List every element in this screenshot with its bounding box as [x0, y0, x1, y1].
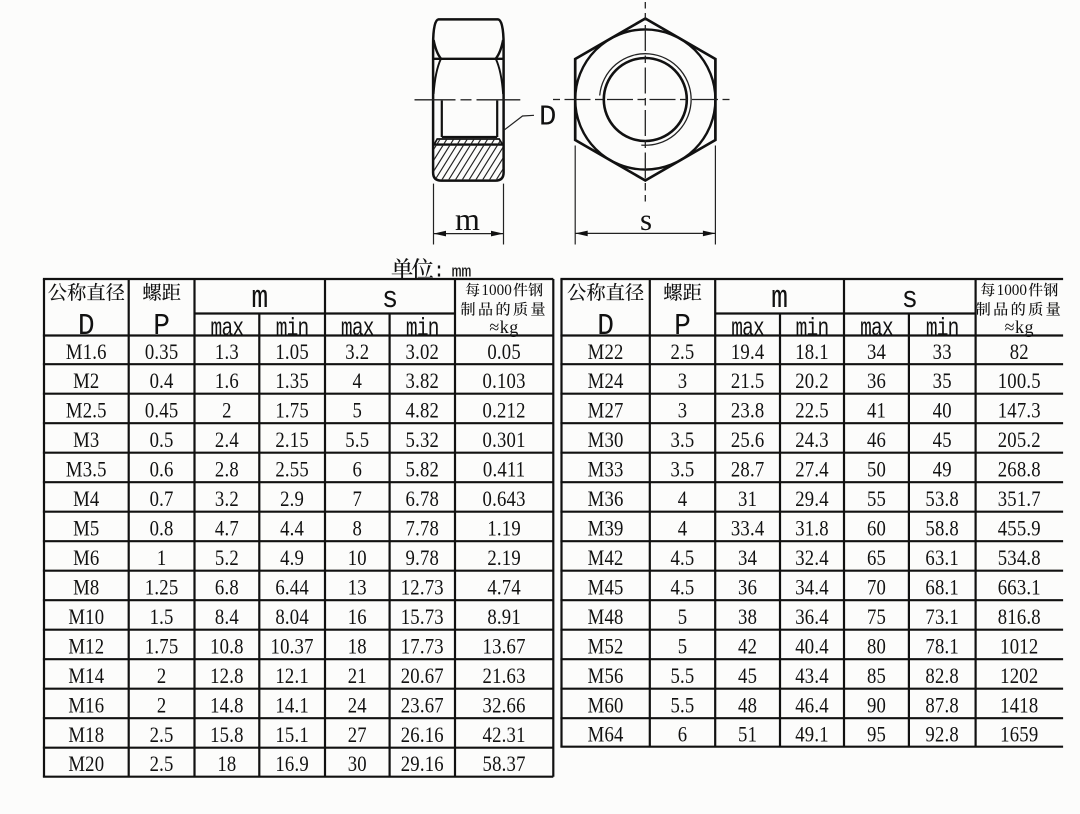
svg-text:29.4: 29.4	[795, 488, 829, 512]
svg-text:1418: 1418	[1000, 694, 1038, 718]
svg-text:40: 40	[933, 399, 952, 423]
svg-text:M2.5: M2.5	[66, 399, 107, 423]
svg-text:s: s	[902, 282, 918, 317]
svg-text:3.82: 3.82	[406, 370, 440, 394]
svg-text:M42: M42	[588, 547, 624, 571]
svg-text:m: m	[771, 282, 788, 318]
svg-text:P: P	[674, 308, 691, 344]
svg-text:351.7: 351.7	[998, 488, 1041, 512]
svg-text:6.8: 6.8	[215, 576, 239, 600]
svg-text:82.8: 82.8	[925, 665, 959, 689]
svg-text:max: max	[731, 314, 764, 343]
svg-text:15.1: 15.1	[275, 724, 309, 748]
svg-text:M3.5: M3.5	[66, 458, 107, 482]
svg-text:31: 31	[738, 488, 757, 512]
svg-text:10.37: 10.37	[271, 635, 314, 659]
svg-text:6: 6	[353, 458, 363, 482]
svg-text:1.5: 1.5	[150, 606, 174, 630]
svg-text:6.78: 6.78	[406, 488, 440, 512]
svg-text:43.4: 43.4	[795, 665, 829, 689]
svg-text:M22: M22	[588, 341, 624, 365]
svg-text:M27: M27	[588, 399, 624, 423]
svg-text:24.3: 24.3	[795, 429, 829, 453]
svg-text:s: s	[382, 282, 398, 317]
svg-text:23.8: 23.8	[731, 399, 765, 423]
svg-text:13: 13	[348, 576, 367, 600]
svg-text:M39: M39	[588, 517, 624, 541]
svg-text:4.5: 4.5	[670, 547, 694, 571]
svg-text:5.2: 5.2	[215, 547, 239, 571]
svg-text:5: 5	[678, 635, 688, 659]
svg-text:14.8: 14.8	[210, 694, 244, 718]
svg-text:M64: M64	[588, 723, 624, 747]
svg-text:14.1: 14.1	[275, 694, 309, 718]
svg-text:M4: M4	[73, 488, 99, 512]
svg-text:68.1: 68.1	[925, 576, 959, 600]
svg-text:2.15: 2.15	[275, 429, 309, 453]
svg-text:D: D	[597, 308, 614, 344]
svg-text:1.25: 1.25	[145, 576, 179, 600]
svg-text:4.82: 4.82	[406, 399, 440, 423]
svg-text:5: 5	[678, 606, 688, 630]
svg-text:45: 45	[933, 429, 952, 453]
svg-text:P: P	[153, 308, 170, 344]
svg-text:29.16: 29.16	[401, 753, 444, 777]
svg-text:0.4: 0.4	[150, 370, 174, 394]
svg-text:53.8: 53.8	[925, 488, 959, 512]
svg-text:M6: M6	[73, 547, 99, 571]
svg-text:100.5: 100.5	[998, 370, 1041, 394]
svg-text:≈kg: ≈kg	[489, 317, 518, 337]
svg-text:4.5: 4.5	[670, 576, 694, 600]
svg-text:73.1: 73.1	[925, 606, 959, 630]
svg-text:2: 2	[222, 399, 232, 423]
svg-text:M52: M52	[588, 635, 624, 659]
svg-text:5.5: 5.5	[670, 694, 694, 718]
svg-text:5.82: 5.82	[406, 458, 440, 482]
svg-text:816.8: 816.8	[998, 606, 1041, 630]
svg-text:min: min	[926, 314, 959, 343]
svg-text:2.5: 2.5	[150, 724, 174, 748]
svg-text:D: D	[539, 101, 555, 134]
svg-text:16.9: 16.9	[275, 753, 309, 777]
svg-text:M2: M2	[73, 370, 99, 394]
svg-text:M3: M3	[73, 429, 99, 453]
svg-text:7: 7	[353, 488, 363, 512]
svg-text:5: 5	[353, 399, 363, 423]
svg-text:M16: M16	[68, 694, 104, 718]
svg-text:21.5: 21.5	[731, 370, 765, 394]
svg-text:0.7: 0.7	[150, 488, 174, 512]
svg-text:8: 8	[353, 517, 363, 541]
svg-text:0.45: 0.45	[145, 399, 179, 423]
svg-text:2.5: 2.5	[150, 753, 174, 777]
svg-text:27.4: 27.4	[795, 458, 829, 482]
svg-text:30: 30	[348, 753, 367, 777]
svg-text:147.3: 147.3	[998, 399, 1041, 423]
svg-text:60: 60	[867, 517, 886, 541]
svg-text:5.5: 5.5	[670, 665, 694, 689]
svg-text:32.66: 32.66	[483, 694, 526, 718]
svg-text:M56: M56	[588, 665, 624, 689]
svg-text:268.8: 268.8	[998, 458, 1041, 482]
svg-text:1202: 1202	[1000, 665, 1038, 689]
svg-text:13.67: 13.67	[483, 635, 526, 659]
svg-text:87.8: 87.8	[925, 694, 959, 718]
svg-text:1.75: 1.75	[145, 635, 179, 659]
svg-text:27: 27	[348, 724, 367, 748]
svg-text:8.4: 8.4	[215, 606, 239, 630]
svg-text:49.1: 49.1	[795, 723, 829, 747]
svg-text:min: min	[406, 314, 439, 343]
svg-text:23.67: 23.67	[401, 694, 444, 718]
svg-text:82: 82	[1010, 341, 1029, 365]
svg-text:0.35: 0.35	[145, 341, 179, 365]
svg-text:2.8: 2.8	[215, 458, 239, 482]
svg-text:M20: M20	[68, 753, 104, 777]
svg-text:4: 4	[678, 488, 688, 512]
svg-text:18.1: 18.1	[795, 341, 829, 365]
svg-text:18: 18	[217, 753, 236, 777]
svg-text:10: 10	[348, 547, 367, 571]
svg-text:2.4: 2.4	[215, 429, 239, 453]
svg-text:9.78: 9.78	[406, 547, 440, 571]
svg-text:0.301: 0.301	[483, 429, 526, 453]
svg-text:D: D	[78, 308, 95, 344]
svg-text:4: 4	[353, 370, 363, 394]
svg-text:78.1: 78.1	[925, 635, 959, 659]
svg-text:21: 21	[348, 665, 367, 689]
svg-text:M60: M60	[588, 694, 624, 718]
svg-text:34.4: 34.4	[795, 576, 829, 600]
svg-text:2.55: 2.55	[275, 458, 309, 482]
svg-text:max: max	[341, 314, 374, 343]
svg-text:7.78: 7.78	[406, 517, 440, 541]
svg-text:21.63: 21.63	[483, 665, 526, 689]
svg-text:M1.6: M1.6	[66, 341, 107, 365]
svg-text:85: 85	[867, 665, 886, 689]
svg-text:min: min	[276, 314, 309, 343]
svg-text:46: 46	[867, 429, 886, 453]
svg-text:46.4: 46.4	[795, 694, 829, 718]
svg-text:20.67: 20.67	[401, 665, 444, 689]
svg-text:36: 36	[738, 576, 757, 600]
svg-text:1659: 1659	[1000, 723, 1038, 747]
svg-text:M48: M48	[588, 606, 624, 630]
svg-text:80: 80	[867, 635, 886, 659]
svg-text:33: 33	[933, 341, 952, 365]
svg-text:1.75: 1.75	[275, 399, 309, 423]
svg-text:663.1: 663.1	[998, 576, 1041, 600]
svg-text:36.4: 36.4	[795, 606, 829, 630]
svg-text:M10: M10	[68, 606, 104, 630]
svg-text:455.9: 455.9	[998, 517, 1041, 541]
svg-text:45: 45	[738, 665, 757, 689]
svg-text:33.4: 33.4	[731, 517, 765, 541]
svg-text:M30: M30	[588, 429, 624, 453]
svg-text:0.643: 0.643	[483, 488, 526, 512]
svg-text:4: 4	[678, 517, 688, 541]
svg-text:36: 36	[867, 370, 886, 394]
svg-text:32.4: 32.4	[795, 547, 829, 571]
svg-text:51: 51	[738, 723, 757, 747]
svg-text:≈kg: ≈kg	[1005, 317, 1034, 337]
svg-text:49: 49	[933, 458, 952, 482]
svg-text:41: 41	[867, 399, 886, 423]
svg-text:55: 55	[867, 488, 886, 512]
svg-text:12.73: 12.73	[401, 576, 444, 600]
svg-text:0.6: 0.6	[150, 458, 174, 482]
svg-text:18: 18	[348, 635, 367, 659]
svg-text:1000: 1000	[997, 282, 1028, 299]
svg-text:58.37: 58.37	[483, 753, 526, 777]
svg-text:15.73: 15.73	[401, 606, 444, 630]
svg-text:3.2: 3.2	[215, 488, 239, 512]
svg-text:10.8: 10.8	[210, 635, 244, 659]
svg-text:65: 65	[867, 547, 886, 571]
svg-text:2.9: 2.9	[280, 488, 304, 512]
svg-text:95: 95	[867, 723, 886, 747]
svg-text:3.5: 3.5	[670, 458, 694, 482]
svg-text:28.7: 28.7	[731, 458, 765, 482]
svg-text:92.8: 92.8	[925, 723, 959, 747]
svg-text:3.5: 3.5	[670, 429, 694, 453]
svg-text:22.5: 22.5	[795, 399, 829, 423]
svg-text:3.2: 3.2	[345, 341, 369, 365]
svg-text:max: max	[211, 314, 244, 343]
svg-text:15.8: 15.8	[210, 724, 244, 748]
svg-text:M33: M33	[588, 458, 624, 482]
svg-text:70: 70	[867, 576, 886, 600]
svg-text:M18: M18	[68, 724, 104, 748]
svg-text:20.2: 20.2	[795, 370, 829, 394]
svg-text:1.05: 1.05	[275, 341, 309, 365]
svg-text:0.05: 0.05	[487, 341, 521, 365]
svg-text:4.4: 4.4	[280, 517, 304, 541]
svg-text:1012: 1012	[1000, 635, 1038, 659]
svg-text:M12: M12	[68, 635, 104, 659]
svg-text:34: 34	[738, 547, 757, 571]
svg-text:M24: M24	[588, 370, 624, 394]
svg-text:4.74: 4.74	[487, 576, 521, 600]
svg-text:1.3: 1.3	[215, 341, 239, 365]
svg-text:48: 48	[738, 694, 757, 718]
svg-text:1000: 1000	[481, 282, 512, 299]
svg-text:24: 24	[348, 694, 367, 718]
svg-text:1.6: 1.6	[215, 370, 239, 394]
svg-text:s: s	[640, 202, 652, 237]
svg-text:5.5: 5.5	[345, 429, 369, 453]
svg-text:38: 38	[738, 606, 757, 630]
svg-text:31.8: 31.8	[795, 517, 829, 541]
svg-text:534.8: 534.8	[998, 547, 1041, 571]
svg-text:0.8: 0.8	[150, 517, 174, 541]
svg-text:2.19: 2.19	[487, 547, 521, 571]
svg-text:0.5: 0.5	[150, 429, 174, 453]
svg-text:M5: M5	[73, 517, 99, 541]
svg-text:12.8: 12.8	[210, 665, 244, 689]
svg-text:2: 2	[157, 694, 167, 718]
svg-text:34: 34	[867, 341, 886, 365]
svg-text:4.9: 4.9	[280, 547, 304, 571]
svg-text:19.4: 19.4	[731, 341, 765, 365]
svg-text:2.5: 2.5	[670, 341, 694, 365]
svg-text:0.103: 0.103	[483, 370, 526, 394]
svg-text:min: min	[796, 314, 829, 343]
svg-text:1: 1	[157, 547, 167, 571]
svg-text:6.44: 6.44	[275, 576, 309, 600]
svg-text:1.35: 1.35	[275, 370, 309, 394]
svg-text:205.2: 205.2	[998, 429, 1041, 453]
svg-text:90: 90	[867, 694, 886, 718]
svg-text:M14: M14	[68, 665, 104, 689]
svg-text:M8: M8	[73, 576, 99, 600]
svg-text:0.411: 0.411	[483, 458, 525, 482]
svg-text:50: 50	[867, 458, 886, 482]
svg-text:26.16: 26.16	[401, 724, 444, 748]
svg-text:3: 3	[678, 399, 688, 423]
svg-text:1.19: 1.19	[487, 517, 521, 541]
svg-text:2: 2	[157, 665, 167, 689]
svg-text:m: m	[455, 201, 480, 237]
svg-text:3: 3	[678, 370, 688, 394]
svg-text:5.32: 5.32	[406, 429, 440, 453]
svg-text:63.1: 63.1	[925, 547, 959, 571]
svg-text:8.91: 8.91	[487, 606, 521, 630]
svg-text:4.7: 4.7	[215, 517, 239, 541]
svg-text:0.212: 0.212	[483, 399, 526, 423]
svg-text:16: 16	[348, 606, 367, 630]
svg-text:6: 6	[678, 723, 688, 747]
svg-text:42.31: 42.31	[483, 724, 526, 748]
svg-text:m: m	[251, 282, 268, 318]
svg-text:35: 35	[933, 370, 952, 394]
svg-text:58.8: 58.8	[925, 517, 959, 541]
svg-text:12.1: 12.1	[275, 665, 309, 689]
svg-text:17.73: 17.73	[401, 635, 444, 659]
svg-text:max: max	[860, 314, 893, 343]
svg-text:M36: M36	[588, 488, 624, 512]
svg-text:M45: M45	[588, 576, 624, 600]
svg-text:8.04: 8.04	[275, 606, 309, 630]
svg-text:25.6: 25.6	[731, 429, 765, 453]
svg-text:3.02: 3.02	[406, 341, 440, 365]
svg-text:42: 42	[738, 635, 757, 659]
svg-text:40.4: 40.4	[795, 635, 829, 659]
svg-text:75: 75	[867, 606, 886, 630]
